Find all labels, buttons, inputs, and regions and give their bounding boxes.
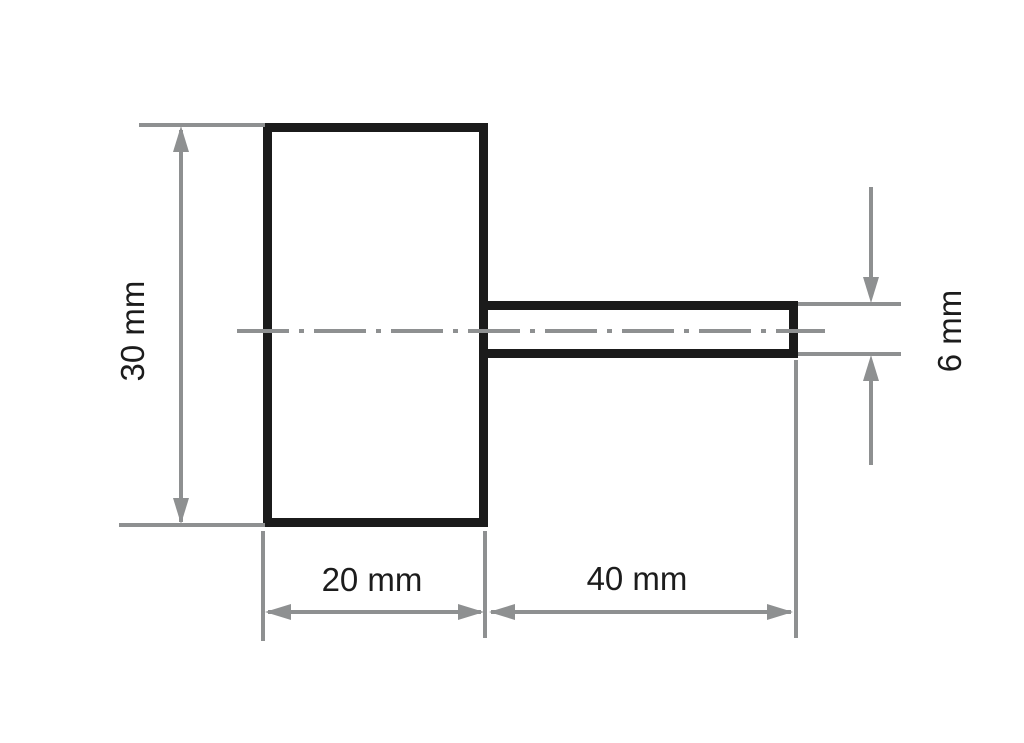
arrowhead-left-icon xyxy=(489,604,515,620)
dimension-line-body-width xyxy=(268,610,481,614)
dimension-label-body-height: 30 mm xyxy=(112,251,154,411)
dimension-line-shaft-diameter-lower xyxy=(869,380,873,465)
extension-line-shaft-top xyxy=(798,302,901,306)
extension-line-body-left xyxy=(261,531,265,641)
dimension-label-shaft-diameter: 6 mm xyxy=(929,251,971,411)
extension-line-body-bottom xyxy=(119,523,265,527)
extension-line-shaft-bottom xyxy=(798,352,901,356)
arrowhead-right-icon xyxy=(458,604,484,620)
technical-drawing: 30 mm 20 mm 40 mm 6 mm xyxy=(0,0,1024,743)
dimension-label-shaft-length: 40 mm xyxy=(557,558,717,600)
extension-line-body-top xyxy=(139,123,265,127)
arrowhead-up-icon xyxy=(863,355,879,381)
arrowhead-left-icon xyxy=(265,604,291,620)
arrowhead-right-icon xyxy=(767,604,793,620)
dimension-label-body-width: 20 mm xyxy=(292,559,452,601)
extension-line-shaft-end xyxy=(794,360,798,638)
part-body-outline xyxy=(263,123,488,527)
dimension-line-body-height xyxy=(179,130,183,522)
arrowhead-down-icon xyxy=(863,277,879,303)
dimension-line-shaft-diameter-upper xyxy=(869,187,873,278)
dimension-line-shaft-length xyxy=(491,610,791,614)
centerline xyxy=(237,329,825,333)
arrowhead-up-icon xyxy=(173,126,189,152)
extension-line-body-right xyxy=(483,531,487,638)
arrowhead-down-icon xyxy=(173,498,189,524)
